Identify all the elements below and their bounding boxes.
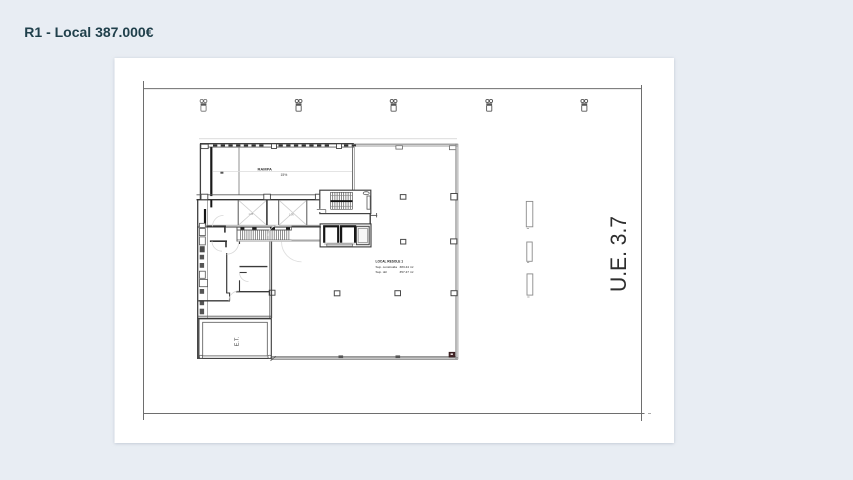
- svg-text:U.E. 3.7: U.E. 3.7: [606, 216, 631, 292]
- svg-text:1.06: 1.06: [289, 213, 294, 216]
- svg-text:E.T.: E.T.: [235, 336, 241, 346]
- svg-text:15%: 15%: [281, 173, 288, 177]
- svg-text:1.05: 1.05: [249, 213, 254, 216]
- svg-text:LOCAL RESOLE 1: LOCAL RESOLE 1: [376, 260, 404, 264]
- svg-text:383.44 m²: 383.44 m²: [400, 265, 414, 269]
- svg-text:Sup. útil: Sup. útil: [376, 270, 387, 274]
- svg-text:R1 - Local 387.000€: R1 - Local 387.000€: [24, 24, 153, 40]
- svg-text:Sup. construida: Sup. construida: [376, 265, 398, 269]
- svg-text:357.47 m²: 357.47 m²: [400, 270, 414, 274]
- svg-text:RAMPA: RAMPA: [258, 167, 272, 172]
